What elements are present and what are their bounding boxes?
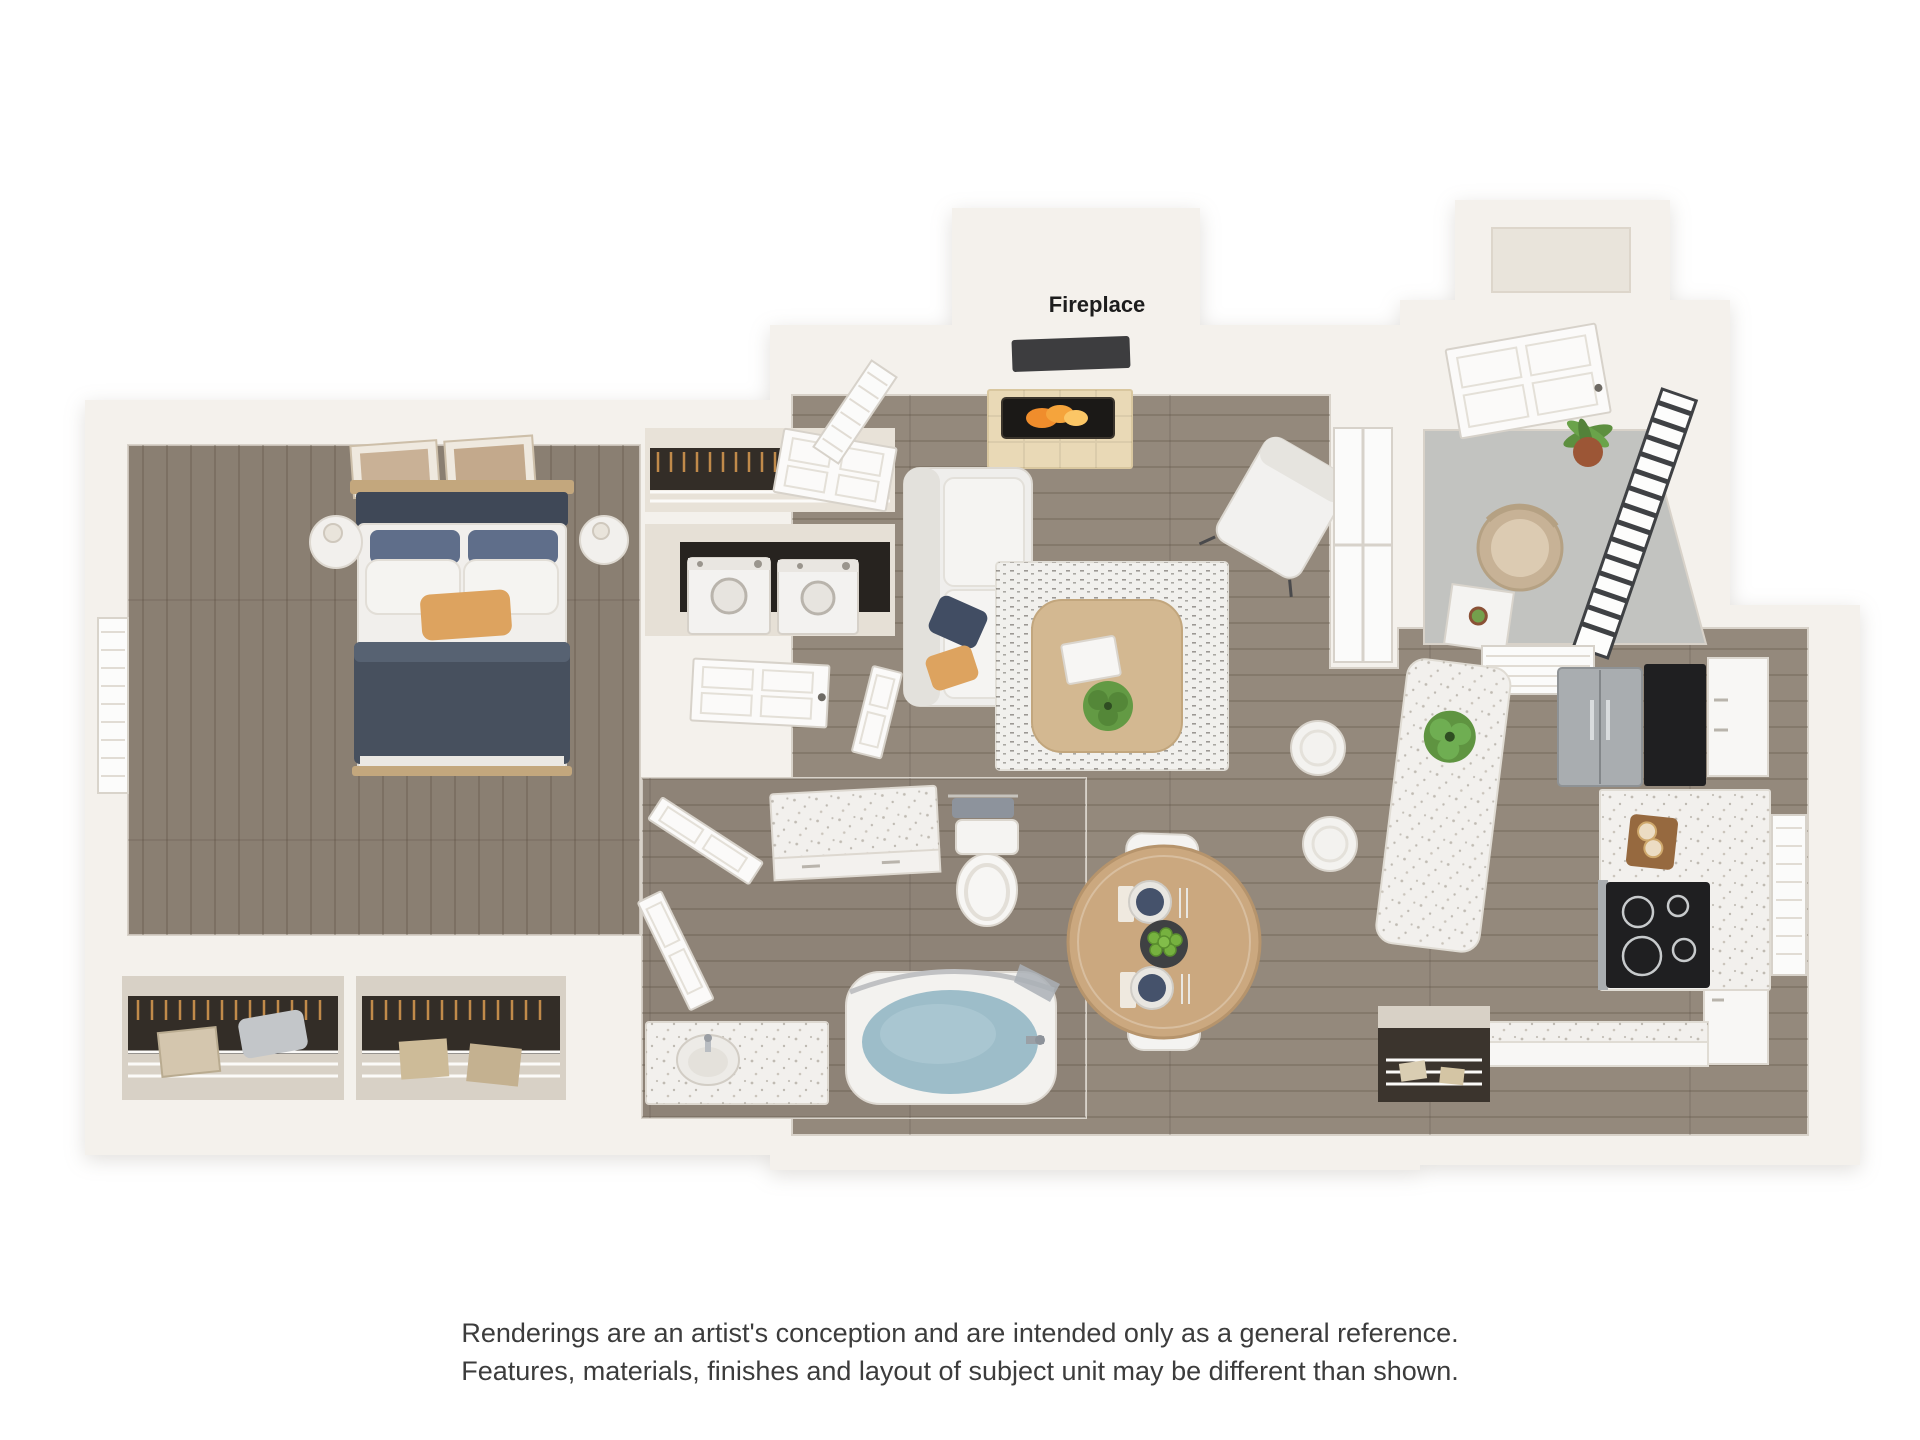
- laundry-closet: [645, 524, 895, 636]
- disclaimer-line-2: Features, materials, finishes and layout…: [0, 1352, 1920, 1390]
- pantry-closet: [1378, 1006, 1490, 1102]
- lower-cabinets: [1704, 990, 1768, 1064]
- headboard: [356, 492, 568, 526]
- storage-closet-opening: [1492, 228, 1630, 292]
- counter-bottom: [1462, 1022, 1708, 1066]
- lamp: [593, 523, 609, 539]
- floor-plan-rendering: Fireplace: [0, 0, 1920, 1440]
- fireplace: [988, 390, 1132, 468]
- fireplace-label: Fireplace: [1049, 292, 1146, 317]
- hall-door: [690, 658, 829, 727]
- disclaimer-line-1: Renderings are an artist's conception an…: [0, 1314, 1920, 1352]
- book: [1061, 636, 1121, 685]
- floor-plan-page: Fireplace: [0, 0, 1920, 1440]
- upper-cabinets: [1708, 658, 1768, 776]
- accent-pillow: [420, 589, 513, 641]
- table-plant: [1083, 681, 1133, 731]
- bar-stool: [1303, 817, 1357, 871]
- succulent: [1469, 607, 1487, 625]
- shelf-item: [1399, 1060, 1427, 1081]
- washer: [688, 558, 770, 634]
- bedroom-window: [98, 618, 128, 793]
- flame: [1064, 410, 1088, 426]
- bed: [350, 480, 574, 776]
- kitchen-window-right: [1772, 815, 1806, 975]
- dryer: [778, 560, 858, 634]
- storage-box: [466, 1043, 522, 1086]
- shelf-item: [1439, 1067, 1465, 1085]
- towel: [952, 798, 1014, 818]
- patio-chair: [1478, 506, 1562, 590]
- vanity-cabinet: [770, 786, 940, 881]
- tv-mantle: [1011, 336, 1130, 372]
- nightstand-right: [580, 516, 628, 564]
- storage-box: [158, 1027, 220, 1077]
- cutting-board: [1625, 814, 1678, 871]
- stove: [1598, 880, 1710, 990]
- lamp: [324, 524, 342, 542]
- tall-cabinet: [1644, 664, 1706, 786]
- storage-box: [399, 1038, 450, 1079]
- bathtub: [846, 964, 1060, 1104]
- bedroom-closet-1: [122, 976, 344, 1100]
- disclaimer: Renderings are an artist's conception an…: [0, 1314, 1920, 1390]
- balcony-window: [1334, 428, 1392, 662]
- side-table: [1444, 584, 1514, 652]
- fruit-bowl: [1140, 920, 1188, 968]
- nightstand-left: [310, 516, 362, 568]
- bar-stool: [1291, 721, 1345, 775]
- refrigerator: [1558, 668, 1642, 786]
- sink-vanity: [646, 1022, 828, 1104]
- coffee-table: [1032, 600, 1182, 752]
- hall-closet: [645, 428, 897, 512]
- bedroom-closet-2: [356, 976, 566, 1100]
